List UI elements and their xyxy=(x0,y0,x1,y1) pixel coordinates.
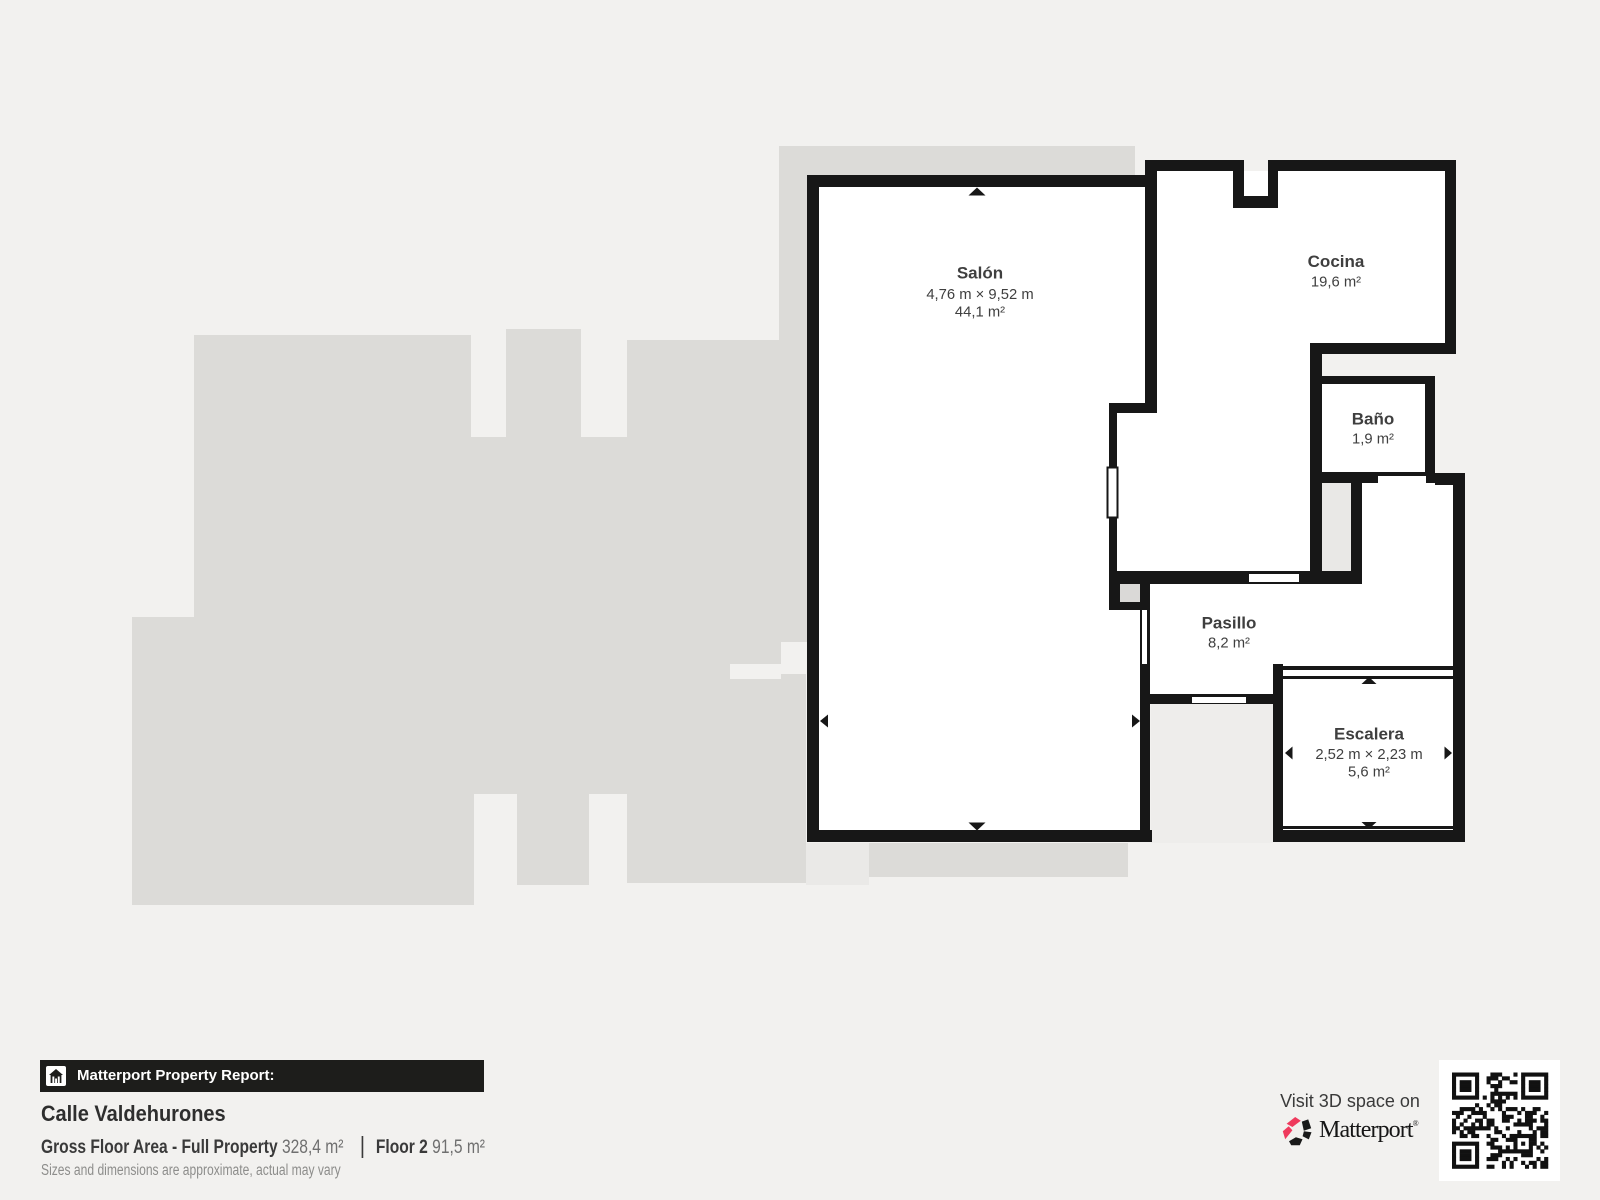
svg-text:5,6 m²: 5,6 m² xyxy=(1348,765,1390,781)
svg-text:1,9 m²: 1,9 m² xyxy=(1352,432,1394,448)
svg-text:8,2 m²: 8,2 m² xyxy=(1208,636,1250,652)
svg-text:Cocina: Cocina xyxy=(1308,252,1365,271)
svg-text:Salón: Salón xyxy=(957,264,1003,283)
svg-text:19,6 m²: 19,6 m² xyxy=(1311,275,1361,291)
svg-text:44,1 m²: 44,1 m² xyxy=(955,305,1005,321)
svg-text:Baño: Baño xyxy=(1352,410,1395,429)
svg-text:Pasillo: Pasillo xyxy=(1202,614,1257,633)
svg-text:Escalera: Escalera xyxy=(1334,725,1404,744)
svg-text:2,52 m × 2,23 m: 2,52 m × 2,23 m xyxy=(1315,747,1422,763)
svg-text:4,76 m × 9,52 m: 4,76 m × 9,52 m xyxy=(926,287,1033,303)
